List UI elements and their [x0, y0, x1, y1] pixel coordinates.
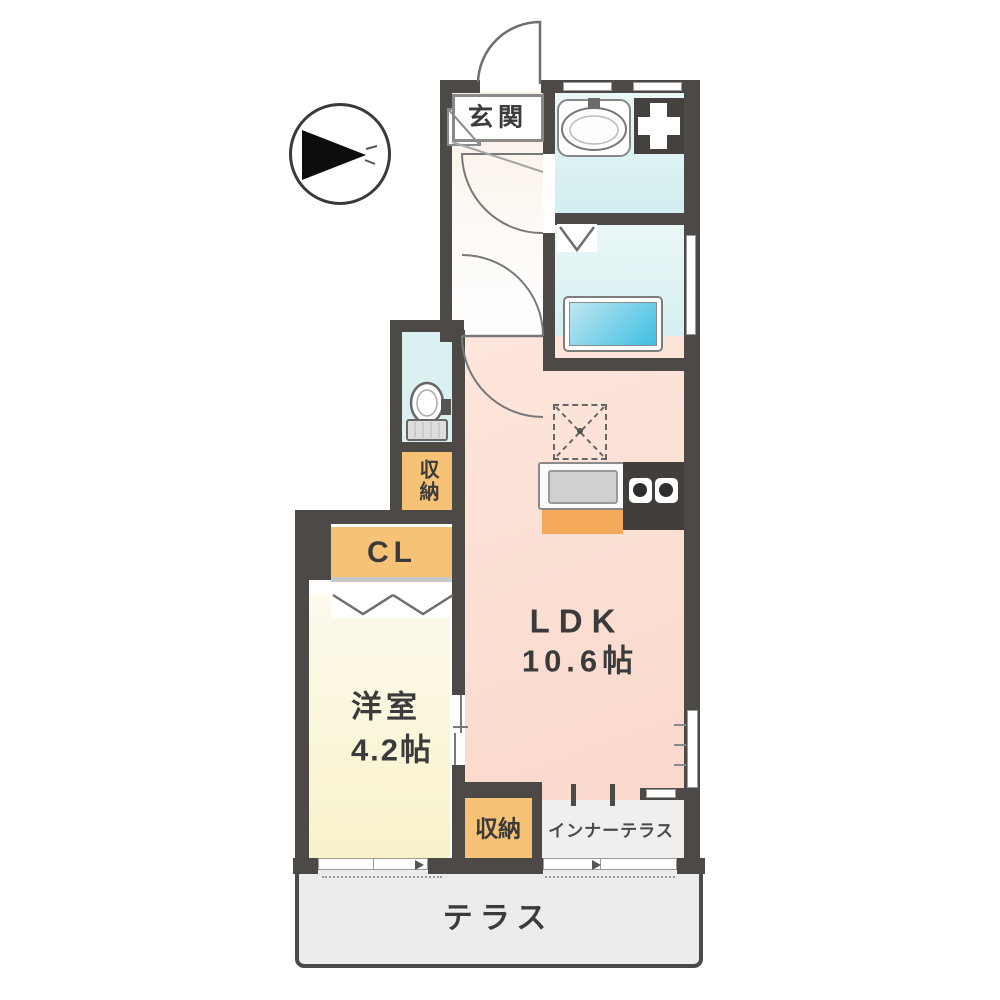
storage-hall-label: 収納: [417, 459, 437, 503]
window: [687, 710, 698, 788]
closet-track-line: [331, 577, 453, 582]
window: [686, 235, 696, 335]
refrigerator-space-fixture: [553, 404, 607, 460]
slide-arrow-icon: [592, 860, 601, 870]
entrance-door-swing: [478, 22, 540, 84]
wall-segment: [555, 213, 684, 225]
window-caption-line: [322, 876, 442, 878]
stove-burner-left: [629, 478, 652, 503]
window: [633, 82, 682, 91]
closet-label: CL: [367, 538, 417, 568]
wall-segment: [543, 92, 555, 154]
storage-ldk-label: 収納: [475, 818, 521, 841]
wall-segment: [390, 320, 402, 522]
entrance-label: 玄関: [468, 106, 528, 131]
bedroom-size-label: 4.2帖: [351, 735, 433, 766]
inner-terrace-label: インナーテラス: [548, 823, 674, 840]
bathtub-fixture: [563, 296, 663, 352]
kitchen-cabinet-fixture: [542, 510, 623, 534]
compass-tip-mark: [365, 146, 377, 164]
terrace-label: テラス: [443, 904, 553, 934]
window: [646, 789, 676, 798]
wall-segment: [295, 510, 309, 874]
compass-arrow-icon: [292, 106, 388, 202]
window: [563, 82, 612, 91]
wall-segment: [543, 358, 684, 371]
sliding-door-opening: [450, 695, 465, 765]
kitchen-sink-fixture: [548, 470, 618, 504]
wall-segment: [543, 233, 555, 358]
stove-burner-right: [655, 478, 678, 503]
window-caption-line: [545, 876, 675, 878]
sliding-window-tick: [571, 784, 576, 806]
wall-segment: [452, 782, 542, 798]
wall-segment: [309, 524, 331, 580]
slide-arrow-icon: [415, 860, 424, 870]
wall-segment: [295, 510, 465, 524]
compass-icon: [289, 103, 391, 205]
toilet-floor: [402, 332, 452, 442]
bedroom-label: 洋室: [351, 692, 421, 723]
bedroom-floor: [309, 594, 450, 858]
bathtub-water: [569, 302, 657, 346]
window-sliding: [543, 858, 677, 870]
wall-segment: [293, 858, 318, 874]
window-divider: [373, 859, 374, 869]
ldk-label: LDK: [530, 605, 625, 638]
wall-segment: [392, 442, 454, 452]
window-sliding: [318, 858, 428, 870]
wall-segment: [440, 330, 465, 342]
wall-segment: [532, 782, 542, 858]
ldk-size-label: 10.6帖: [522, 646, 638, 677]
wall-segment: [677, 858, 705, 874]
wall-segment: [428, 858, 543, 874]
closet-door-band: [331, 592, 453, 618]
floorplan-canvas: 玄関 CL 収納 LDK 10.6帖 洋室 4.2帖 収納 インナーテラス テラ…: [0, 0, 1000, 1000]
sliding-window-tick: [610, 784, 615, 806]
wall-segment: [452, 765, 465, 858]
compass-triangle: [302, 130, 366, 180]
washroom-floor: [555, 92, 684, 213]
